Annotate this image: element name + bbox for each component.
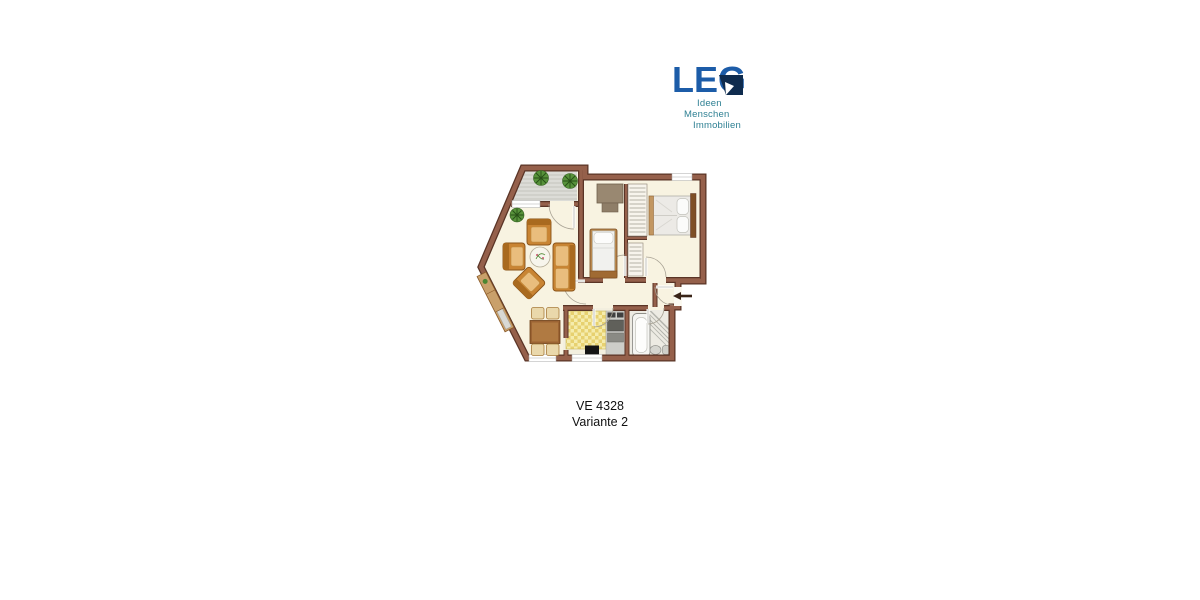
kitchen-counter: [566, 311, 606, 349]
window-bedroom: [672, 174, 692, 181]
chair: [547, 344, 560, 356]
caption: VE 4328 Variante 2: [520, 399, 680, 430]
single-bed: [590, 229, 617, 278]
caption-line-2: Variante 2: [520, 415, 680, 431]
double-bed: [649, 194, 696, 238]
page: { "page": { "background": "#ffffff" }, "…: [0, 0, 1200, 600]
chair: [547, 308, 560, 320]
plant-icon: [534, 171, 549, 186]
floor-plan: [455, 155, 713, 371]
washbasin: [650, 346, 661, 355]
leg-logo-text: LEG: [672, 59, 746, 100]
chair: [532, 344, 545, 356]
window-kitchen: [572, 355, 602, 362]
armchair: [527, 219, 551, 245]
plant-icon: [510, 208, 524, 222]
leg-tagline: Ideen Menschen Immobilien: [672, 99, 762, 131]
caption-line-1: VE 4328: [520, 399, 680, 415]
toilet: [663, 346, 670, 355]
leg-logo: LEG Ideen Menschen Immobilien: [672, 62, 762, 131]
chair: [532, 308, 545, 320]
wardrobe: [597, 184, 623, 203]
leg-logo-word: LEG: [672, 62, 762, 98]
tagline-line-2: Menschen: [672, 110, 762, 121]
armchair: [503, 243, 525, 270]
plant-icon: [563, 174, 578, 189]
coffee-table: [530, 247, 550, 267]
window-balcony-divider: [512, 201, 540, 208]
tagline-line-3: Immobilien: [672, 121, 762, 132]
sofa: [553, 243, 575, 291]
bedroom: [649, 194, 696, 238]
